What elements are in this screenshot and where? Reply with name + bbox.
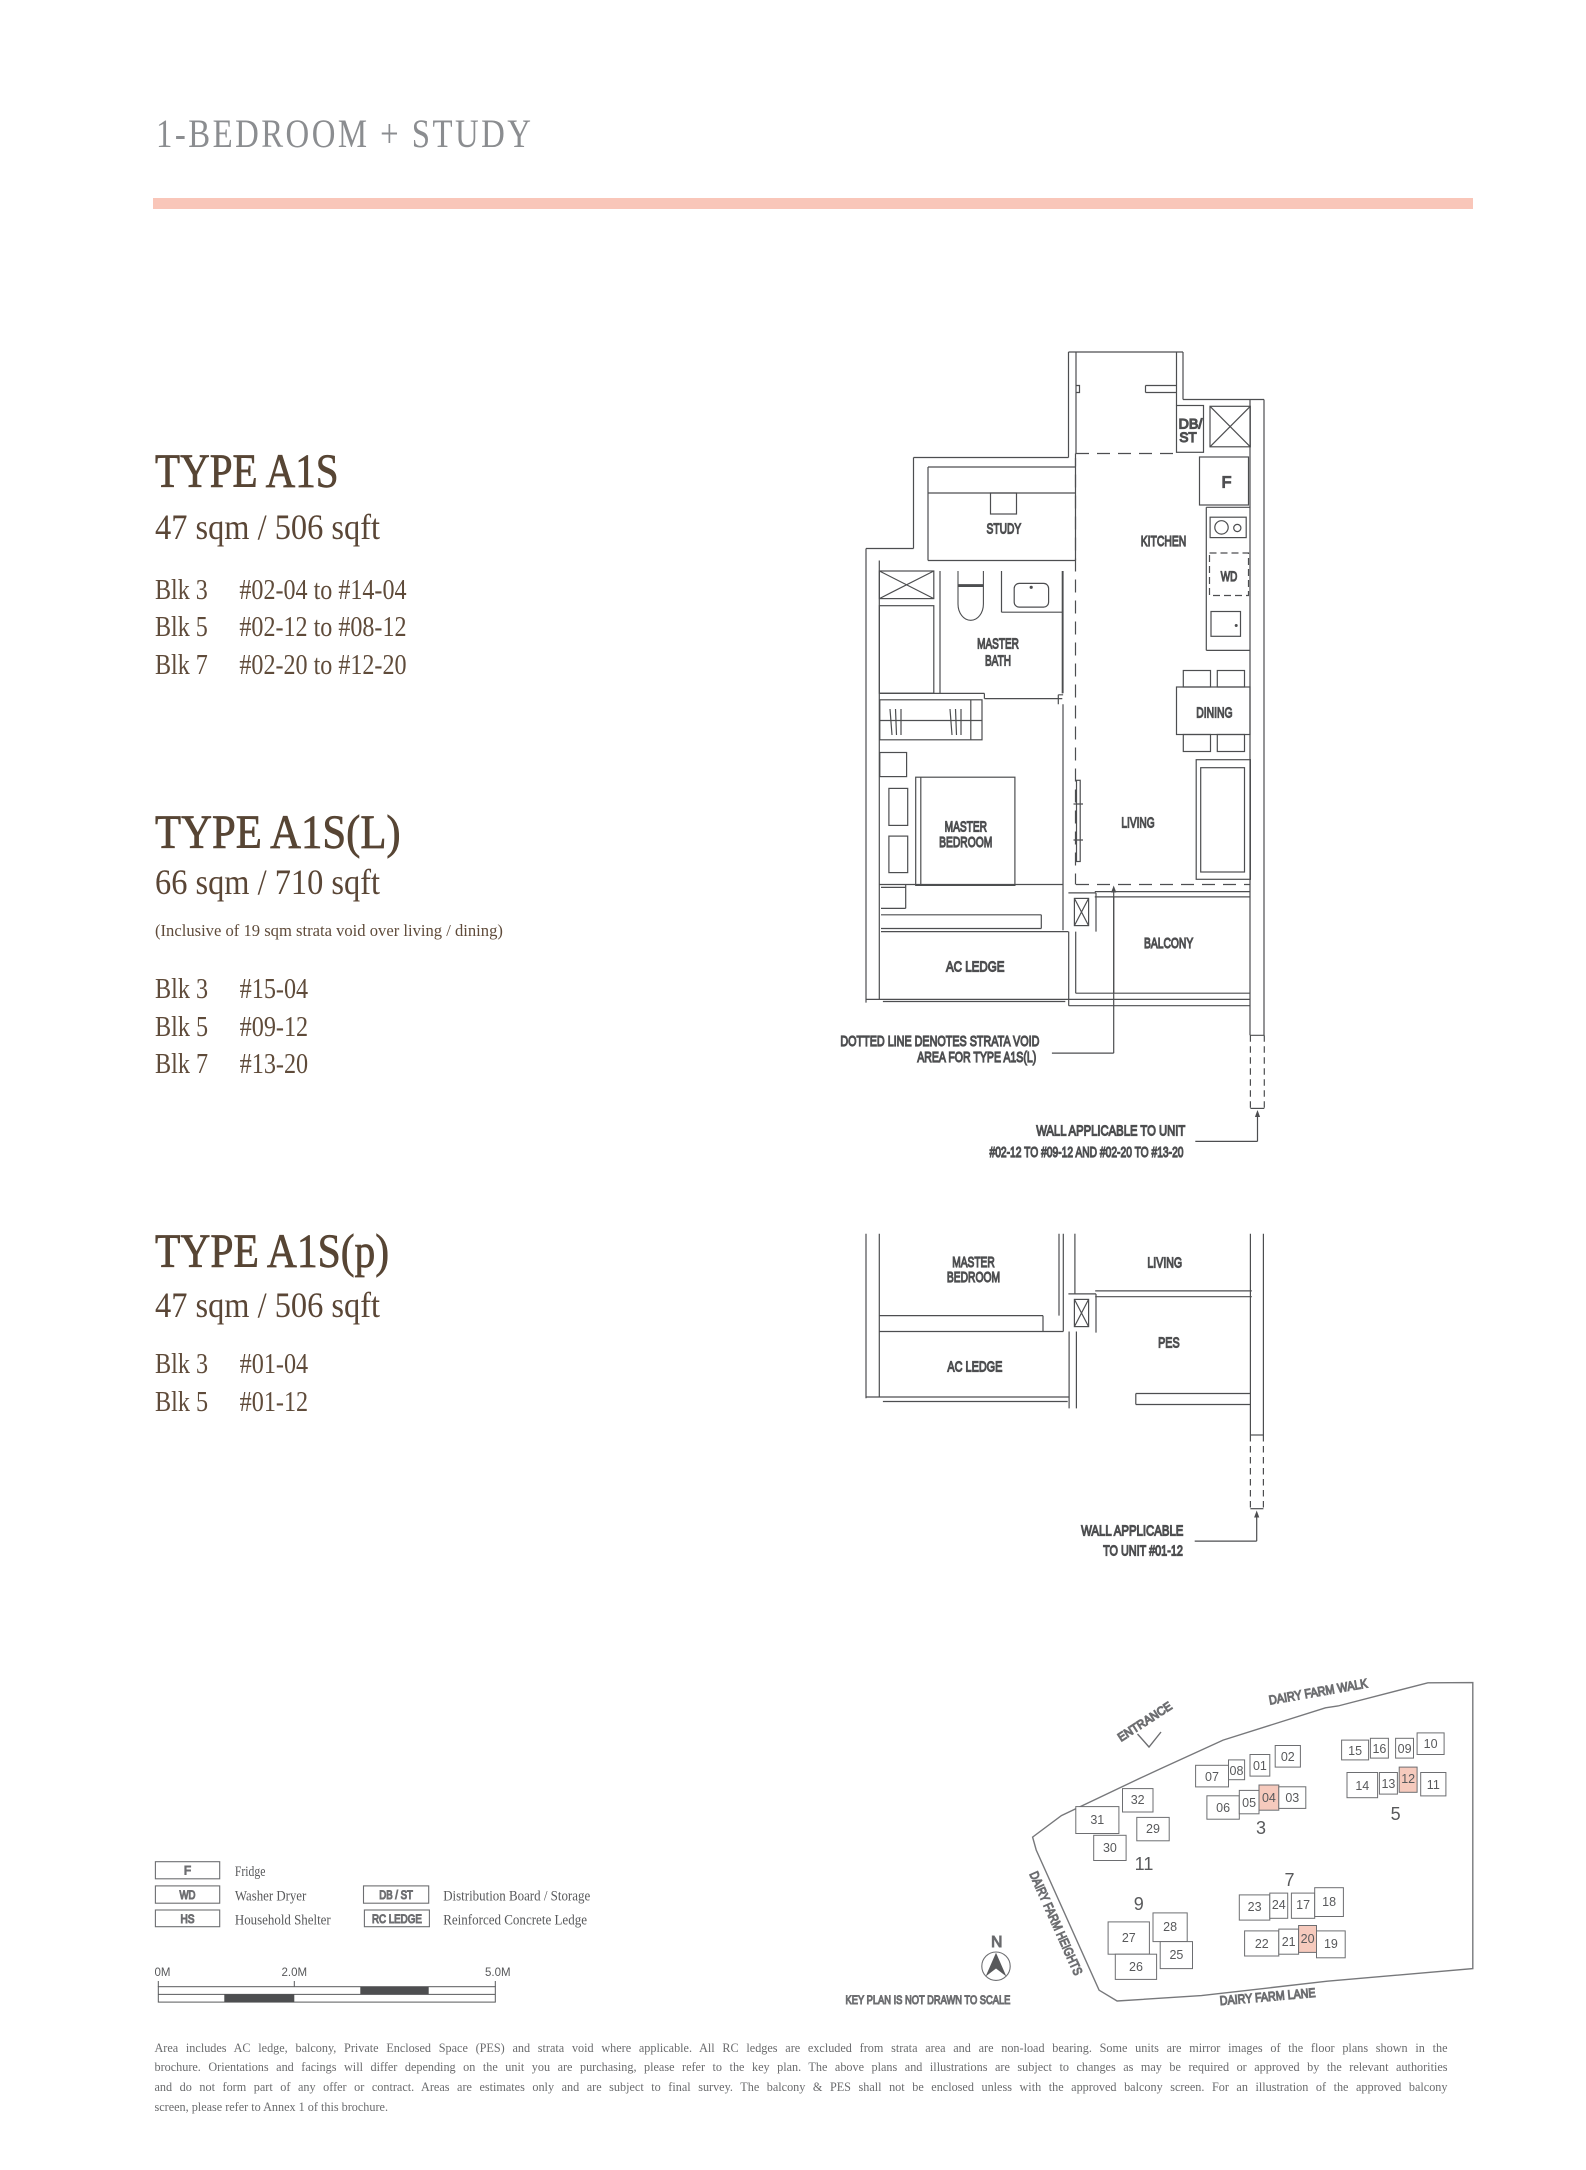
svg-text:24: 24: [1272, 1898, 1286, 1912]
svg-text:04: 04: [1262, 1791, 1276, 1805]
svg-text:DB / ST: DB / ST: [379, 1890, 413, 1902]
svg-text:LIVING: LIVING: [1121, 815, 1154, 832]
svg-text:DAIRY FARM HEIGHTS: DAIRY FARM HEIGHTS: [1026, 1869, 1085, 1977]
svg-text:06: 06: [1216, 1801, 1230, 1815]
svg-text:DAIRY FARM WALK: DAIRY FARM WALK: [1268, 1675, 1369, 1707]
svg-text:WALL APPLICABLE TO UNIT: WALL APPLICABLE TO UNIT: [1036, 1122, 1185, 1139]
svg-text:ST: ST: [1179, 429, 1197, 445]
svg-text:BEDROOM: BEDROOM: [939, 834, 992, 851]
svg-text:10: 10: [1424, 1737, 1438, 1751]
svg-text:MASTER: MASTER: [977, 635, 1019, 652]
svg-text:DINING: DINING: [1196, 704, 1232, 721]
svg-text:07: 07: [1205, 1770, 1219, 1784]
svg-text:KITCHEN: KITCHEN: [1141, 533, 1187, 550]
svg-text:3: 3: [1256, 1818, 1266, 1838]
svg-text:WD: WD: [180, 1890, 196, 1902]
svg-text:20: 20: [1301, 1932, 1315, 1946]
svg-text:7: 7: [1284, 1870, 1294, 1890]
svg-text:Household Shelter: Household Shelter: [235, 1912, 331, 1928]
svg-text:WALL APPLICABLE: WALL APPLICABLE: [1081, 1523, 1183, 1540]
svg-text:11: 11: [1427, 1778, 1440, 1792]
svg-text:F: F: [184, 1866, 191, 1878]
svg-text:F: F: [1222, 475, 1232, 492]
svg-text:15: 15: [1348, 1744, 1362, 1758]
svg-text:21: 21: [1282, 1935, 1296, 1949]
svg-text:08: 08: [1230, 1764, 1244, 1778]
svg-text:PES: PES: [1158, 1335, 1180, 1352]
svg-text:18: 18: [1322, 1895, 1336, 1909]
svg-text:5: 5: [1391, 1804, 1401, 1824]
svg-text:0M: 0M: [155, 1967, 171, 1979]
svg-text:12: 12: [1401, 1772, 1415, 1786]
svg-text:29: 29: [1146, 1822, 1160, 1836]
svg-text:25: 25: [1169, 1948, 1183, 1962]
svg-text:19: 19: [1324, 1937, 1338, 1951]
svg-text:22: 22: [1255, 1937, 1269, 1951]
svg-text:RC LEDGE: RC LEDGE: [372, 1914, 422, 1926]
svg-text:05: 05: [1242, 1796, 1256, 1810]
svg-text:HS: HS: [181, 1914, 195, 1926]
svg-text:AC LEDGE: AC LEDGE: [947, 1359, 1002, 1376]
svg-text:BALCONY: BALCONY: [1144, 935, 1193, 952]
svg-text:WD: WD: [1221, 568, 1238, 584]
svg-text:31: 31: [1090, 1813, 1104, 1827]
svg-text:17: 17: [1296, 1898, 1310, 1912]
svg-text:Distribution Board / Storage: Distribution Board / Storage: [443, 1889, 590, 1905]
svg-text:N: N: [991, 1934, 1002, 1951]
svg-text:TO UNIT #01-12: TO UNIT #01-12: [1103, 1543, 1183, 1560]
svg-text:BATH: BATH: [985, 653, 1011, 670]
svg-text:DOTTED LINE DENOTES STRATA VOI: DOTTED LINE DENOTES STRATA VOID: [840, 1033, 1039, 1050]
svg-text:AC LEDGE: AC LEDGE: [946, 959, 1005, 976]
svg-text:Fridge: Fridge: [235, 1864, 266, 1880]
svg-text:AREA FOR TYPE A1S(L): AREA FOR TYPE A1S(L): [917, 1049, 1036, 1066]
svg-text:14: 14: [1355, 1779, 1369, 1793]
svg-text:30: 30: [1103, 1841, 1117, 1855]
svg-text:27: 27: [1122, 1931, 1136, 1945]
svg-text:STUDY: STUDY: [987, 520, 1022, 537]
svg-text:13: 13: [1381, 1777, 1395, 1791]
svg-text:26: 26: [1129, 1960, 1143, 1974]
svg-text:11: 11: [1135, 1854, 1154, 1874]
svg-text:02: 02: [1281, 1750, 1295, 1764]
svg-text:BEDROOM: BEDROOM: [947, 1269, 1000, 1286]
svg-text:9: 9: [1134, 1894, 1144, 1914]
svg-text:ENTRANCE: ENTRANCE: [1115, 1699, 1175, 1745]
svg-text:Washer Dryer: Washer Dryer: [235, 1889, 306, 1905]
svg-text:32: 32: [1131, 1793, 1145, 1807]
svg-text:28: 28: [1163, 1920, 1177, 1934]
svg-text:Reinforced Concrete Ledge: Reinforced Concrete Ledge: [443, 1912, 587, 1928]
svg-text:5.0M: 5.0M: [485, 1967, 511, 1979]
svg-text:DAIRY FARM LANE: DAIRY FARM LANE: [1219, 1985, 1316, 2008]
svg-text:09: 09: [1398, 1742, 1412, 1756]
svg-text:16: 16: [1372, 1742, 1386, 1756]
svg-text:01: 01: [1253, 1759, 1267, 1773]
svg-text:KEY PLAN IS NOT DRAWN TO SCALE: KEY PLAN IS NOT DRAWN TO SCALE: [846, 1993, 1011, 2007]
svg-text:23: 23: [1248, 1900, 1262, 1914]
svg-text:03: 03: [1285, 1791, 1299, 1805]
svg-text:#02-12 TO #09-12 AND #02-20 TO: #02-12 TO #09-12 AND #02-20 TO #13-20: [990, 1144, 1184, 1161]
svg-text:LIVING: LIVING: [1147, 1255, 1182, 1272]
svg-text:2.0M: 2.0M: [282, 1967, 308, 1979]
